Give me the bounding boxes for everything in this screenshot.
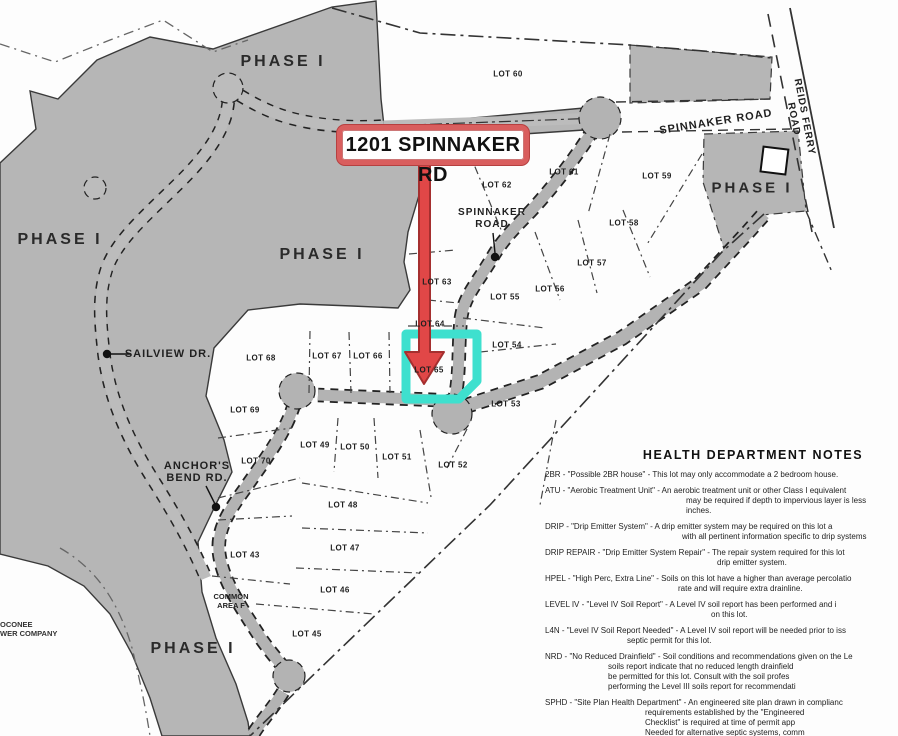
corner-owner-text: OCONEE WER COMPANY xyxy=(0,620,57,638)
phase1-label-east: PHASE I xyxy=(711,180,792,197)
lot-label-lot-56: LOT 56 xyxy=(535,285,565,294)
lot-label-lot-68: LOT 68 xyxy=(246,354,276,363)
lot-label-lot-66: LOT 66 xyxy=(353,352,383,361)
health-note-item: SPHD - "Site Plan Health Department" - A… xyxy=(545,698,898,736)
lot-label-lot-69: LOT 69 xyxy=(230,406,260,415)
health-note-item: DRIP REPAIR - "Drip Emitter System Repai… xyxy=(545,548,898,568)
lot-label-lot-64: LOT 64 xyxy=(415,320,445,329)
lot-label-lot-48: LOT 48 xyxy=(328,501,358,510)
phase1-west-area xyxy=(0,1,620,736)
lot-label-lot-51: LOT 51 xyxy=(382,453,412,462)
lot-label-lot-59: LOT 59 xyxy=(642,172,672,181)
road-edge-dashes xyxy=(466,214,764,406)
health-note-item: L4N - "Level IV Soil Report Needed" - A … xyxy=(545,626,898,646)
anchors-bend-rd-label: ANCHOR'S BEND RD. xyxy=(164,460,230,484)
health-note-item: LEVEL IV - "Level IV Soil Report" - A Le… xyxy=(545,600,898,620)
lot-label-lot-60: LOT 60 xyxy=(493,70,523,79)
spinnaker-road-southeast xyxy=(466,214,764,406)
phase1-label-center: PHASE I xyxy=(279,246,364,264)
lot-label-lot-55: LOT 55 xyxy=(490,293,520,302)
lot-label-lot-62: LOT 62 xyxy=(482,181,512,190)
phase1-northeast-upper xyxy=(630,45,772,103)
phase1-label-south: PHASE I xyxy=(150,640,235,658)
health-note-item: NRD - "No Reduced Drainfield" - Soil con… xyxy=(545,652,898,692)
lot-label-lot-43: LOT 43 xyxy=(230,551,260,560)
health-note-item: 2BR - "Possible 2BR house" - This lot ma… xyxy=(545,470,898,480)
lot-label-lot-63: LOT 63 xyxy=(422,278,452,287)
address-callout: 1201 SPINNAKER RD xyxy=(337,125,529,165)
lot-label-lot-46: LOT 46 xyxy=(320,586,350,595)
lot-label-lot-54: LOT 54 xyxy=(492,341,522,350)
lot-label-lot-57: LOT 57 xyxy=(577,259,607,268)
structure-square-icon xyxy=(761,147,789,175)
health-notes-title: HEALTH DEPARTMENT NOTES xyxy=(557,448,898,462)
lot-label-lot-50: LOT 50 xyxy=(340,443,370,452)
sailview-dr-label: SAILVIEW DR. xyxy=(125,348,211,360)
lot-label-lot-52: LOT 52 xyxy=(438,461,468,470)
lot-label-lot-70: LOT 70 xyxy=(241,457,271,466)
phase1-label-west: PHASE I xyxy=(17,231,102,249)
lot-label-lot-58: LOT 58 xyxy=(609,219,639,228)
common-area-f-label: COMMON AREA F xyxy=(214,592,249,610)
health-notes-block: 2BR - "Possible 2BR house" - This lot ma… xyxy=(545,464,898,736)
lot-label-lot-49: LOT 49 xyxy=(300,441,330,450)
lot-label-lot-67: LOT 67 xyxy=(312,352,342,361)
lot-label-lot-45: LOT 45 xyxy=(292,630,322,639)
lot-label-lot-53: LOT 53 xyxy=(491,400,521,409)
phase1-label-north: PHASE I xyxy=(240,53,325,71)
health-note-item: DRIP - "Drip Emitter System" - A drip em… xyxy=(545,522,898,542)
health-note-item: ATU - "Aerobic Treatment Unit" - An aero… xyxy=(545,486,898,516)
lot-label-lot-61: LOT 61 xyxy=(549,168,579,177)
lot-label-lot-65: LOT 65 xyxy=(414,366,444,375)
lot-label-lot-47: LOT 47 xyxy=(330,544,360,553)
health-note-item: HPEL - "High Perc, Extra Line" - Soils o… xyxy=(545,574,898,594)
spinnaker-road-label-mid: SPINNAKER ROAD xyxy=(458,207,526,231)
plat-map-screenshot: PHASE I PHASE I PHASE I PHASE I PHASE I … xyxy=(0,0,898,736)
